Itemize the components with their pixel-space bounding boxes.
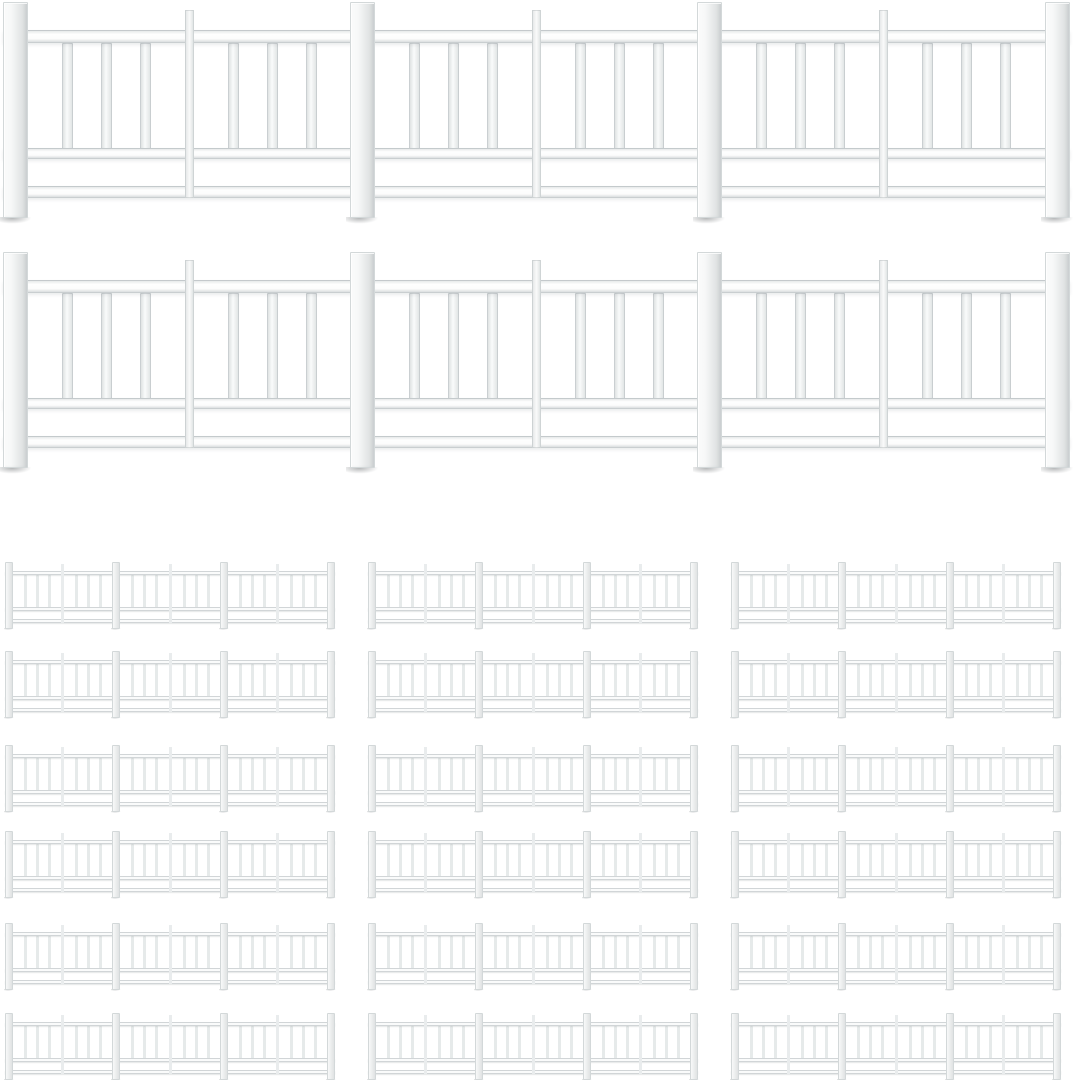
fence-baluster	[653, 664, 656, 697]
post-foot-shadow	[693, 217, 726, 224]
fence-baluster	[933, 844, 936, 877]
fence-post	[327, 831, 335, 898]
fence-intermediate-post	[61, 653, 64, 712]
fence-baluster	[933, 1026, 936, 1059]
fence-post	[583, 745, 591, 812]
fence-baluster	[922, 43, 933, 152]
fence-intermediate-post	[895, 564, 898, 623]
fence-baluster	[462, 575, 465, 608]
fence-baluster	[677, 1026, 680, 1059]
fence-intermediate-post	[532, 564, 535, 623]
fence-intermediate-post	[169, 833, 172, 892]
fence-baluster	[438, 664, 441, 697]
fence-baluster	[263, 936, 266, 969]
fence-post	[368, 831, 376, 898]
fence-baluster	[239, 575, 242, 608]
fence-baluster	[774, 664, 777, 697]
fence-baluster	[314, 936, 317, 969]
fence-post	[327, 562, 335, 629]
fence-baluster	[506, 664, 509, 697]
fence-post	[475, 562, 483, 629]
fence-baluster	[409, 293, 420, 402]
fence-baluster	[857, 1026, 860, 1059]
fence-post	[220, 923, 228, 990]
fence-post	[368, 745, 376, 812]
fence-baluster	[518, 575, 521, 608]
fence-baluster	[1016, 664, 1019, 697]
fence-baluster	[665, 844, 668, 877]
fence-intermediate-post	[895, 747, 898, 806]
fence-baluster	[989, 664, 992, 697]
fence-baluster	[774, 936, 777, 969]
fence-baluster	[143, 1026, 146, 1059]
fence-baluster	[450, 1026, 453, 1059]
fence-baluster	[774, 575, 777, 608]
fence-baluster	[1040, 844, 1043, 877]
fence-baluster	[387, 575, 390, 608]
fence-baluster	[75, 844, 78, 877]
fence-baluster	[411, 936, 414, 969]
fence-post	[1053, 923, 1061, 990]
fence-baluster	[546, 936, 549, 969]
fence-baluster	[653, 1026, 656, 1059]
fence-baluster	[614, 575, 617, 608]
fence-intermediate-post	[1002, 564, 1005, 623]
fence-baluster	[267, 43, 278, 152]
fence-baluster	[99, 758, 102, 791]
fence-baluster	[48, 1026, 51, 1059]
fence-baluster	[909, 758, 912, 791]
fence-baluster	[989, 758, 992, 791]
fence-baluster	[24, 758, 27, 791]
fence-post	[583, 1013, 591, 1080]
fence-baluster	[131, 664, 134, 697]
fence-intermediate-post	[639, 564, 642, 623]
fence-intermediate-post	[424, 564, 427, 623]
fence-post	[946, 745, 954, 812]
fence-baluster	[614, 43, 625, 152]
fence-post	[5, 831, 13, 898]
fence-intermediate-post	[61, 925, 64, 984]
small-fence-panel-r1-c3	[731, 562, 1061, 629]
large-fence-panel-1	[3, 2, 1070, 218]
fence-baluster	[518, 844, 521, 877]
fence-baluster	[75, 758, 78, 791]
fence-baluster	[183, 758, 186, 791]
fence-post	[5, 562, 13, 629]
fence-baluster	[602, 758, 605, 791]
fence-baluster	[762, 758, 765, 791]
fence-baluster	[251, 1026, 254, 1059]
small-fence-panel-r1-c2	[368, 562, 698, 629]
fence-baluster	[570, 758, 573, 791]
fence-baluster	[36, 936, 39, 969]
product-image	[0, 0, 1073, 1080]
fence-intermediate-post	[895, 653, 898, 712]
post-foot-shadow	[346, 217, 379, 224]
fence-baluster	[155, 1026, 158, 1059]
fence-intermediate-post	[895, 833, 898, 892]
fence-baluster	[24, 844, 27, 877]
fence-baluster	[801, 844, 804, 877]
fence-baluster	[869, 936, 872, 969]
fence-baluster	[263, 575, 266, 608]
fence-baluster	[24, 1026, 27, 1059]
fence-baluster	[665, 1026, 668, 1059]
fence-baluster	[462, 664, 465, 697]
fence-baluster	[387, 936, 390, 969]
fence-baluster	[487, 293, 498, 402]
fence-baluster	[207, 758, 210, 791]
fence-baluster	[99, 844, 102, 877]
fence-baluster	[48, 575, 51, 608]
fence-intermediate-post	[1002, 1015, 1005, 1074]
fence-baluster	[518, 936, 521, 969]
fence-intermediate-post	[276, 747, 279, 806]
fence-intermediate-post	[532, 10, 541, 198]
fence-baluster	[62, 43, 73, 152]
fence-baluster	[762, 664, 765, 697]
fence-baluster	[977, 664, 980, 697]
fence-baluster	[570, 844, 573, 877]
fence-baluster	[614, 844, 617, 877]
small-fence-panel-r5-c1	[5, 923, 335, 990]
fence-baluster	[506, 936, 509, 969]
fence-baluster	[909, 575, 912, 608]
fence-baluster	[869, 575, 872, 608]
fence-intermediate-post	[276, 925, 279, 984]
fence-baluster	[795, 43, 806, 152]
fence-baluster	[36, 575, 39, 608]
fence-intermediate-post	[787, 747, 790, 806]
fence-post	[112, 651, 120, 718]
fence-baluster	[774, 844, 777, 877]
fence-baluster	[869, 844, 872, 877]
small-fence-panel-r4-c1	[5, 831, 335, 898]
small-fence-panel-r5-c3	[731, 923, 1061, 990]
fence-baluster	[24, 936, 27, 969]
fence-baluster	[626, 844, 629, 877]
fence-baluster	[438, 844, 441, 877]
fence-baluster	[306, 293, 317, 402]
fence-baluster	[857, 758, 860, 791]
fence-baluster	[494, 664, 497, 697]
fence-baluster	[506, 575, 509, 608]
fence-baluster	[677, 758, 680, 791]
fence-baluster	[399, 936, 402, 969]
fence-intermediate-post	[169, 747, 172, 806]
fence-baluster	[1040, 664, 1043, 697]
fence-baluster	[195, 844, 198, 877]
fence-baluster	[48, 758, 51, 791]
fence-post	[475, 745, 483, 812]
fence-baluster	[653, 844, 656, 877]
fence-baluster	[989, 844, 992, 877]
fence-baluster	[965, 664, 968, 697]
fence-baluster	[448, 293, 459, 402]
fence-baluster	[602, 575, 605, 608]
fence-intermediate-post	[879, 10, 888, 198]
fence-baluster	[665, 575, 668, 608]
fence-post	[731, 831, 739, 898]
fence-baluster	[989, 1026, 992, 1059]
fence-baluster	[869, 664, 872, 697]
fence-baluster	[302, 575, 305, 608]
fence-baluster	[813, 664, 816, 697]
fence-baluster	[494, 575, 497, 608]
fence-baluster	[546, 1026, 549, 1059]
fence-post	[475, 831, 483, 898]
fence-baluster	[207, 1026, 210, 1059]
fence-baluster	[1028, 936, 1031, 969]
fence-baluster	[155, 664, 158, 697]
fence-baluster	[140, 293, 151, 402]
fence-baluster	[155, 758, 158, 791]
fence-baluster	[801, 936, 804, 969]
fence-post	[368, 1013, 376, 1080]
fence-baluster	[438, 758, 441, 791]
fence-baluster	[774, 1026, 777, 1059]
fence-baluster	[825, 758, 828, 791]
fence-baluster	[183, 844, 186, 877]
fence-baluster	[881, 758, 884, 791]
fence-intermediate-post	[169, 564, 172, 623]
fence-baluster	[75, 1026, 78, 1059]
fence-baluster	[399, 1026, 402, 1059]
fence-post	[731, 923, 739, 990]
fence-baluster	[62, 293, 73, 402]
fence-baluster	[626, 936, 629, 969]
fence-baluster	[36, 664, 39, 697]
fence-intermediate-post	[879, 260, 888, 448]
fence-baluster	[494, 936, 497, 969]
fence-post	[1053, 562, 1061, 629]
fence-intermediate-post	[276, 564, 279, 623]
fence-baluster	[75, 575, 78, 608]
fence-baluster	[195, 664, 198, 697]
fence-baluster	[302, 844, 305, 877]
fence-baluster	[131, 758, 134, 791]
fence-baluster	[87, 844, 90, 877]
fence-baluster	[183, 936, 186, 969]
fence-baluster	[665, 758, 668, 791]
fence-post	[112, 562, 120, 629]
fence-baluster	[143, 844, 146, 877]
fence-intermediate-post	[169, 925, 172, 984]
fence-intermediate-post	[61, 1015, 64, 1074]
fence-intermediate-post	[639, 653, 642, 712]
fence-intermediate-post	[424, 653, 427, 712]
fence-baluster	[965, 844, 968, 877]
fence-post	[690, 923, 698, 990]
fence-intermediate-post	[639, 1015, 642, 1074]
fence-baluster	[1016, 575, 1019, 608]
fence-baluster	[302, 664, 305, 697]
fence-baluster	[834, 293, 845, 402]
fence-baluster	[977, 758, 980, 791]
fence-baluster	[614, 293, 625, 402]
fence-post	[112, 745, 120, 812]
fence-post	[112, 831, 120, 898]
fence-baluster	[99, 936, 102, 969]
small-fence-panel-r6-c2	[368, 1013, 698, 1080]
fence-baluster	[801, 758, 804, 791]
fence-post	[838, 562, 846, 629]
fence-post	[327, 1013, 335, 1080]
small-fence-panel-r2-c2	[368, 651, 698, 718]
fence-baluster	[518, 758, 521, 791]
fence-baluster	[558, 1026, 561, 1059]
fence-post	[5, 923, 13, 990]
small-fence-panel-r3-c1	[5, 745, 335, 812]
fence-baluster	[933, 575, 936, 608]
fence-baluster	[977, 1026, 980, 1059]
fence-post	[731, 651, 739, 718]
fence-intermediate-post	[424, 925, 427, 984]
fence-baluster	[228, 293, 239, 402]
fence-baluster	[825, 844, 828, 877]
fence-intermediate-post	[895, 1015, 898, 1074]
fence-post	[327, 651, 335, 718]
post-foot-shadow	[693, 467, 726, 474]
fence-post	[838, 1013, 846, 1080]
fence-baluster	[813, 1026, 816, 1059]
fence-baluster	[75, 664, 78, 697]
fence-post	[690, 651, 698, 718]
fence-baluster	[614, 936, 617, 969]
fence-baluster	[677, 664, 680, 697]
fence-baluster	[251, 664, 254, 697]
fence-baluster	[750, 1026, 753, 1059]
fence-post	[3, 2, 28, 218]
fence-baluster	[881, 1026, 884, 1059]
fence-post	[690, 562, 698, 629]
fence-intermediate-post	[169, 653, 172, 712]
fence-baluster	[75, 936, 78, 969]
fence-baluster	[36, 1026, 39, 1059]
fence-post	[583, 651, 591, 718]
fence-baluster	[228, 43, 239, 152]
fence-post	[838, 831, 846, 898]
fence-baluster	[653, 936, 656, 969]
fence-baluster	[195, 575, 198, 608]
post-foot-shadow	[0, 217, 32, 224]
fence-baluster	[438, 936, 441, 969]
fence-baluster	[207, 575, 210, 608]
fence-baluster	[602, 1026, 605, 1059]
fence-baluster	[762, 936, 765, 969]
fence-baluster	[762, 1026, 765, 1059]
fence-baluster	[494, 758, 497, 791]
fence-baluster	[131, 575, 134, 608]
fence-intermediate-post	[61, 747, 64, 806]
fence-baluster	[207, 936, 210, 969]
fence-intermediate-post	[532, 747, 535, 806]
fence-baluster	[750, 936, 753, 969]
fence-baluster	[857, 936, 860, 969]
fence-post	[3, 252, 28, 468]
fence-baluster	[575, 43, 586, 152]
fence-post	[1045, 252, 1070, 468]
fence-intermediate-post	[185, 260, 194, 448]
fence-baluster	[626, 664, 629, 697]
fence-baluster	[87, 575, 90, 608]
fence-post	[350, 2, 375, 218]
fence-baluster	[506, 758, 509, 791]
fence-baluster	[140, 43, 151, 152]
fence-baluster	[965, 758, 968, 791]
fence-intermediate-post	[1002, 925, 1005, 984]
fence-baluster	[546, 844, 549, 877]
fence-baluster	[750, 844, 753, 877]
fence-baluster	[909, 844, 912, 877]
fence-baluster	[602, 664, 605, 697]
fence-baluster	[195, 758, 198, 791]
fence-baluster	[314, 844, 317, 877]
fence-baluster	[869, 1026, 872, 1059]
fence-baluster	[834, 43, 845, 152]
fence-baluster	[399, 758, 402, 791]
fence-baluster	[869, 758, 872, 791]
fence-baluster	[302, 1026, 305, 1059]
fence-baluster	[546, 575, 549, 608]
fence-baluster	[1028, 844, 1031, 877]
fence-baluster	[813, 758, 816, 791]
fence-baluster	[653, 758, 656, 791]
fence-baluster	[1040, 575, 1043, 608]
fence-baluster	[1028, 758, 1031, 791]
small-fence-panel-r4-c2	[368, 831, 698, 898]
fence-intermediate-post	[532, 925, 535, 984]
fence-baluster	[965, 936, 968, 969]
fence-intermediate-post	[61, 564, 64, 623]
fence-baluster	[881, 575, 884, 608]
fence-intermediate-post	[639, 833, 642, 892]
fence-intermediate-post	[276, 833, 279, 892]
fence-baluster	[558, 844, 561, 877]
fence-baluster	[626, 758, 629, 791]
fence-baluster	[183, 1026, 186, 1059]
fence-baluster	[570, 575, 573, 608]
fence-baluster	[101, 293, 112, 402]
fence-baluster	[575, 293, 586, 402]
fence-post	[1053, 1013, 1061, 1080]
fence-baluster	[448, 43, 459, 152]
small-fence-panel-r5-c2	[368, 923, 698, 990]
post-foot-shadow	[1041, 217, 1073, 224]
fence-baluster	[558, 758, 561, 791]
fence-intermediate-post	[639, 925, 642, 984]
fence-post	[5, 1013, 13, 1080]
fence-baluster	[143, 664, 146, 697]
fence-intermediate-post	[639, 747, 642, 806]
fence-baluster	[24, 575, 27, 608]
fence-baluster	[290, 1026, 293, 1059]
fence-baluster	[306, 43, 317, 152]
fence-baluster	[411, 844, 414, 877]
fence-post	[368, 923, 376, 990]
fence-baluster	[462, 1026, 465, 1059]
fence-baluster	[614, 758, 617, 791]
fence-baluster	[626, 1026, 629, 1059]
fence-baluster	[462, 936, 465, 969]
fence-baluster	[977, 936, 980, 969]
small-fence-panel-r3-c2	[368, 745, 698, 812]
fence-baluster	[411, 664, 414, 697]
fence-baluster	[1040, 1026, 1043, 1059]
fence-baluster	[399, 664, 402, 697]
fence-baluster	[450, 936, 453, 969]
